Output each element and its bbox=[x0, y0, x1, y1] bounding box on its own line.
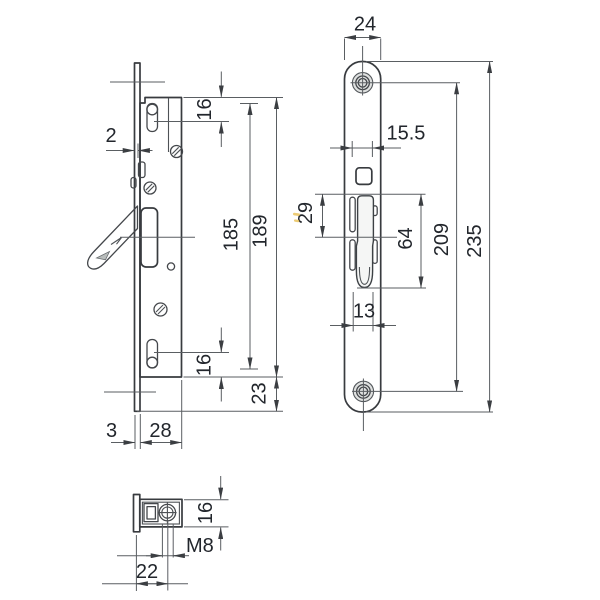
dim-label-plate-overhang: 23 bbox=[249, 382, 271, 404]
dim-label-plate-thickness: 3 bbox=[106, 420, 117, 442]
guide-pin-top bbox=[147, 104, 158, 115]
guide-pin-bottom bbox=[147, 357, 158, 368]
dim-label-follower-offset: 15.5 bbox=[387, 123, 426, 145]
slot-relief-left bbox=[350, 240, 355, 270]
screw-head bbox=[154, 303, 167, 316]
dim-label-latch-protrusion: 2 bbox=[105, 125, 116, 147]
faceplate-section bbox=[134, 495, 140, 532]
technical-drawing-canvas: 2 16 185 189 16 23 3 28 bbox=[0, 0, 600, 600]
dim-label-hole-pitch: 209 bbox=[431, 223, 453, 256]
hook-step-line bbox=[111, 238, 122, 245]
slot-opening bbox=[356, 196, 373, 288]
dim-label-pin-top-offset: 16 bbox=[194, 98, 216, 120]
technical-drawing-page: 2 16 185 189 16 23 3 28 bbox=[0, 0, 600, 600]
hook-slot bbox=[350, 196, 377, 288]
dim-label-axis-offset: 22 bbox=[136, 561, 158, 583]
dim-label-case-depth: 28 bbox=[149, 420, 171, 442]
pin-slot-bottom bbox=[147, 340, 158, 369]
dim-label-plate-length: 235 bbox=[464, 224, 486, 257]
pin-slot-top bbox=[147, 104, 158, 132]
dim-label-slot-width: 13 bbox=[353, 301, 375, 323]
dim-label-case-width: 16 bbox=[195, 502, 217, 524]
dim-label-slot-length: 64 bbox=[395, 227, 417, 249]
dim-label-thread: M8 bbox=[186, 535, 214, 557]
screw-hole-bottom bbox=[352, 379, 375, 432]
side-view: 2 16 185 189 16 23 3 28 bbox=[88, 63, 283, 449]
front-view: 24 15.5 29 64 209 235 13 bbox=[295, 14, 493, 432]
dim-label-pin-bottom-offset: 16 bbox=[194, 354, 216, 376]
section-view: 16 M8 22 bbox=[102, 476, 229, 591]
follower-section-inner bbox=[147, 507, 155, 519]
case-hole bbox=[167, 263, 174, 270]
dim-label-case-height: 189 bbox=[250, 214, 272, 247]
hook-tip-facet bbox=[97, 252, 110, 260]
screw-head bbox=[144, 182, 156, 194]
threaded-bushing bbox=[158, 503, 176, 524]
dim-label-inner-height: 185 bbox=[221, 218, 243, 251]
follower-square-hole bbox=[356, 168, 372, 185]
dim-label-plate-width: 24 bbox=[354, 14, 376, 36]
slot-relief-left bbox=[350, 197, 355, 232]
screw-hole-top bbox=[351, 46, 375, 96]
